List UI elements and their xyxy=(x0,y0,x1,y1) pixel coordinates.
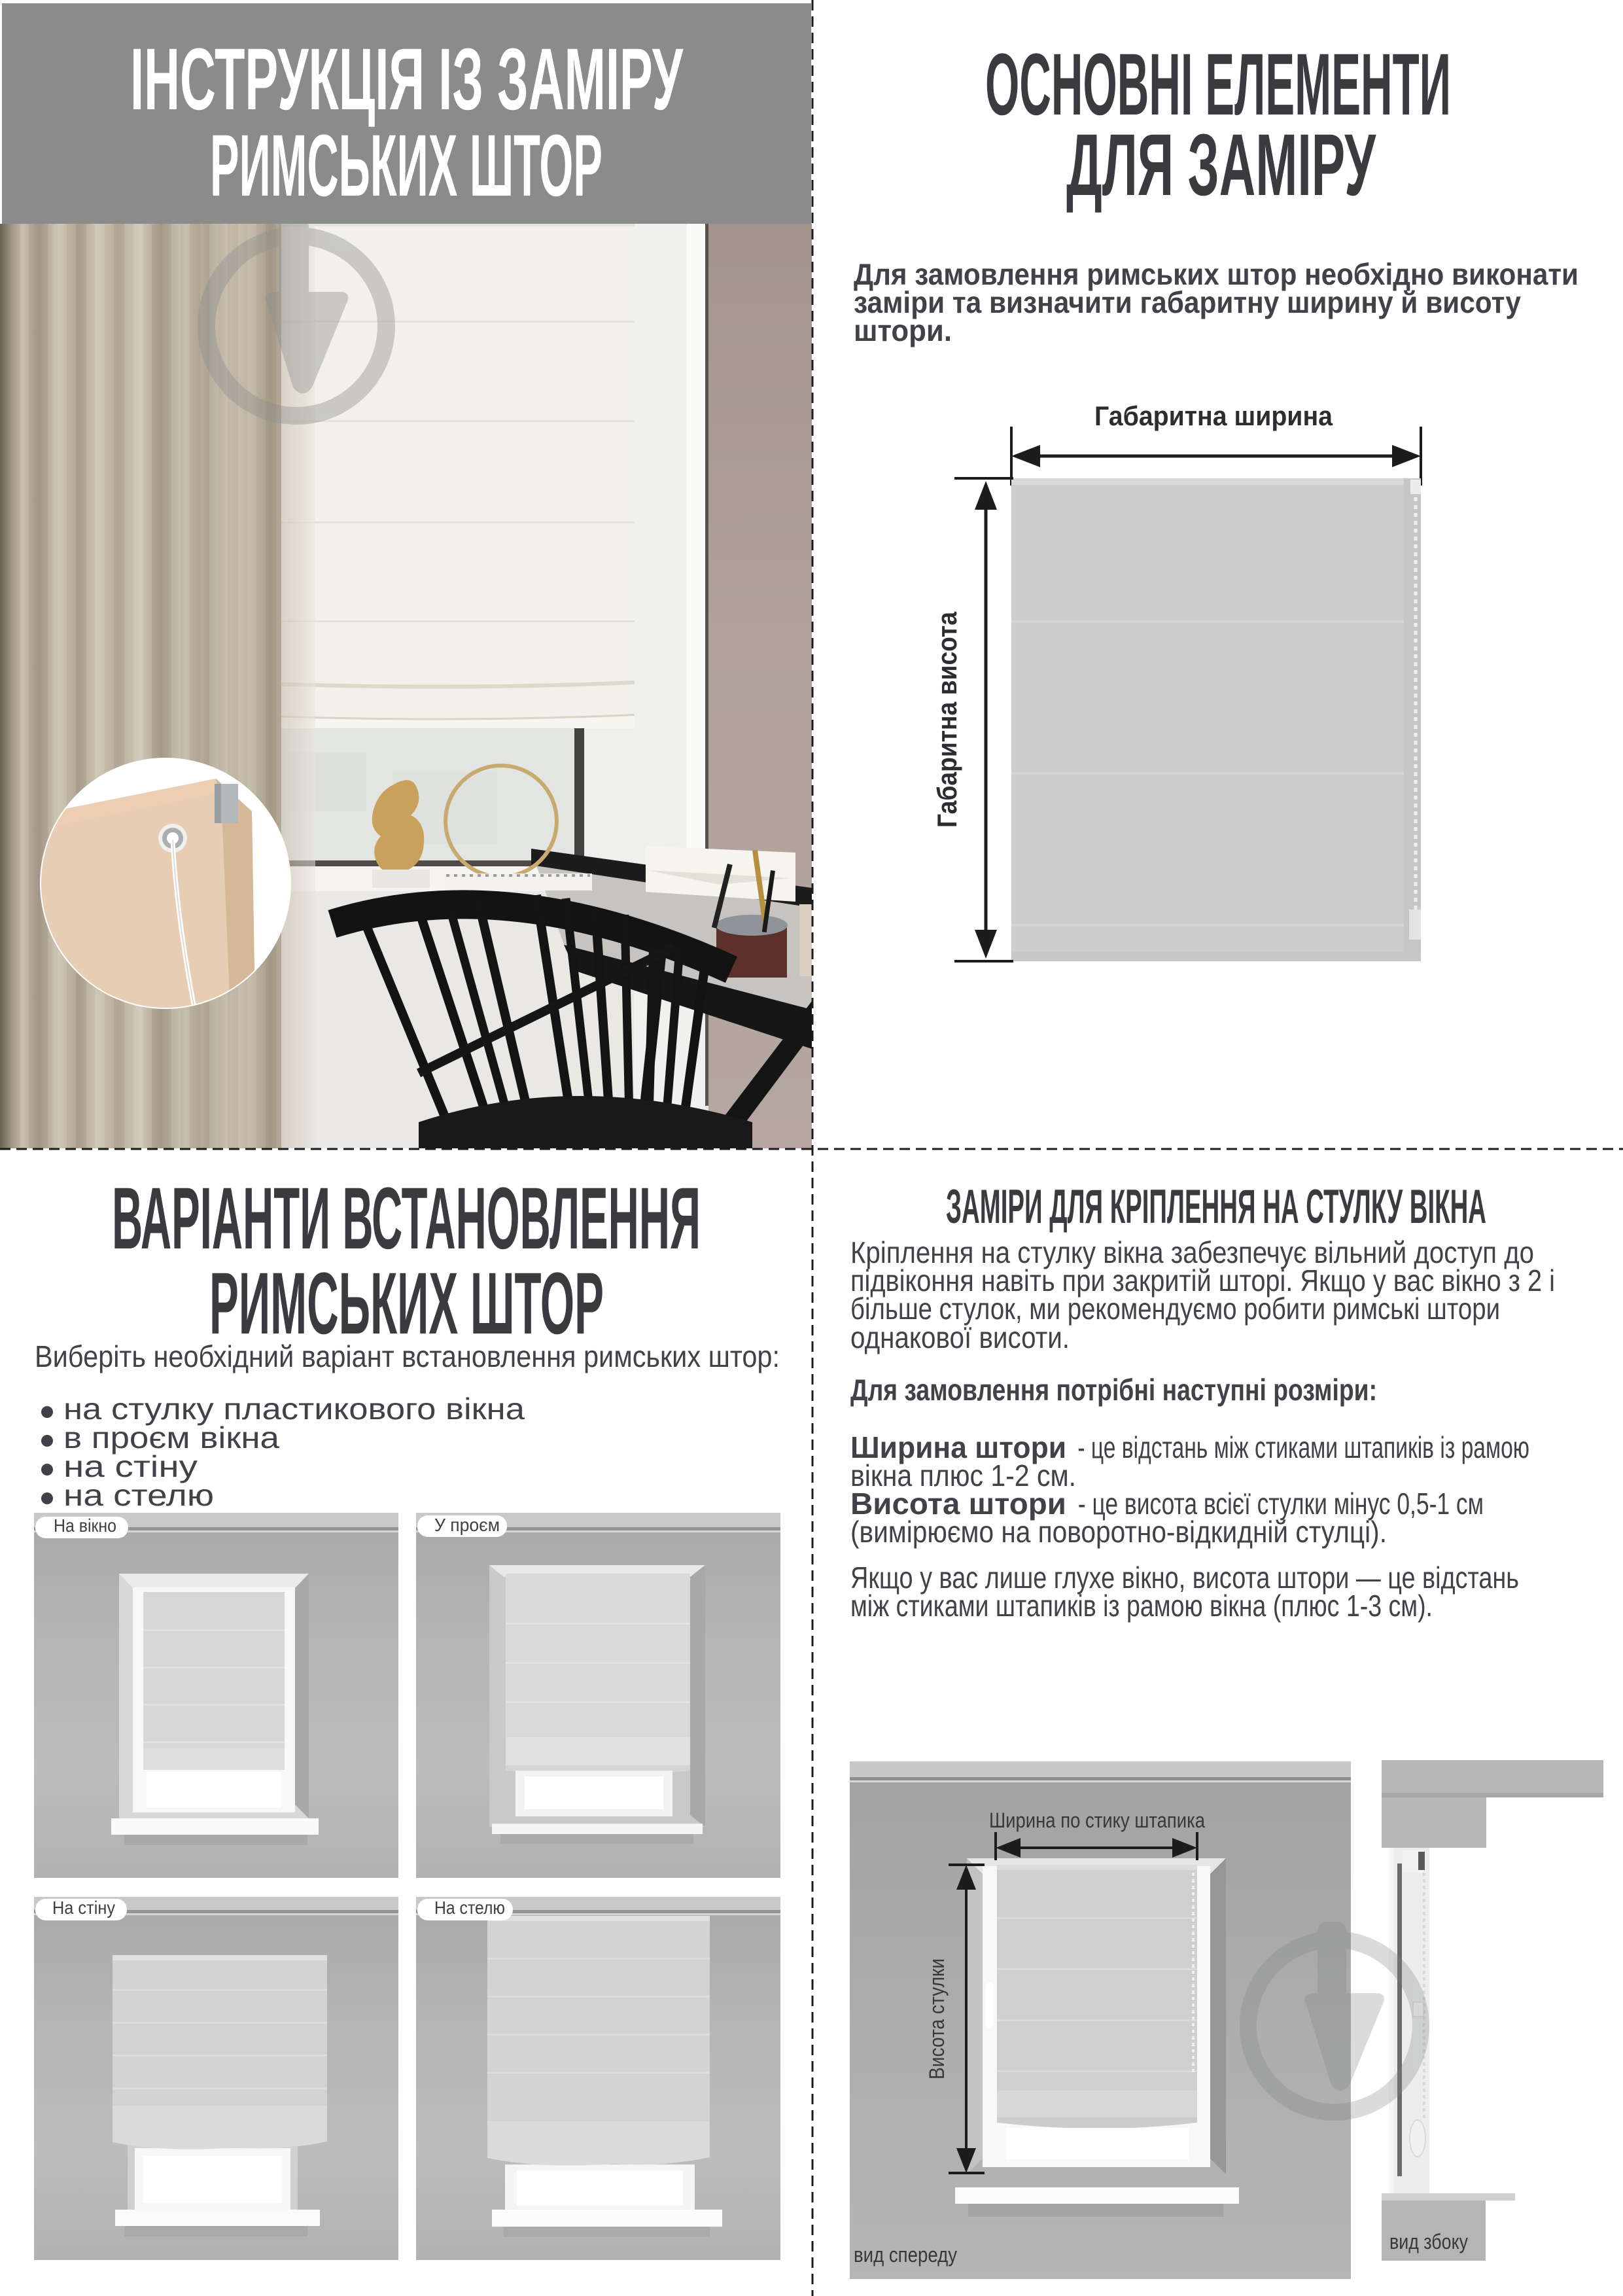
svg-text:ДЛЯ ЗАМІРУ: ДЛЯ ЗАМІРУ xyxy=(1066,116,1376,214)
svg-text:вид спереду: вид спереду xyxy=(854,2243,957,2267)
svg-text:вид збоку: вид збоку xyxy=(1389,2230,1468,2253)
svg-text:Виберіть необхідний варіант вс: Виберіть необхідний варіант встановлення… xyxy=(35,1339,780,1373)
svg-text:заміри та визначити габаритну: заміри та визначити габаритну ширину й в… xyxy=(854,285,1521,319)
svg-text:РИМСЬКИХ ШТОР: РИМСЬКИХ ШТОР xyxy=(210,117,602,215)
svg-text:ІНСТРУКЦІЯ ІЗ ЗАМІРУ: ІНСТРУКЦІЯ ІЗ ЗАМІРУ xyxy=(130,31,684,128)
svg-text:Габаритна висота: Габаритна висота xyxy=(932,611,962,828)
svg-text:У проєм: У проєм xyxy=(434,1515,500,1535)
svg-text:ЗАМІРИ ДЛЯ КРІПЛЕННЯ НА СТУЛКУ: ЗАМІРИ ДЛЯ КРІПЛЕННЯ НА СТУЛКУ ВІКНА xyxy=(946,1180,1486,1233)
svg-text:На стелю: На стелю xyxy=(434,1898,505,1918)
svg-text:Для замовлення потрібні наступ: Для замовлення потрібні наступні розміри… xyxy=(850,1373,1377,1407)
svg-text:штори.: штори. xyxy=(854,313,952,347)
svg-text:(вимірюємо на поворотно-відкид: (вимірюємо на поворотно-відкидній стулці… xyxy=(850,1515,1387,1549)
svg-text:ВАРІАНТИ ВСТАНОВЛЕННЯ: ВАРІАНТИ ВСТАНОВЛЕННЯ xyxy=(112,1170,701,1267)
svg-text:На вікно: На вікно xyxy=(54,1515,116,1536)
svg-text:Висота стулки: Висота стулки xyxy=(925,1958,949,2079)
svg-text:на стелю: на стелю xyxy=(63,1478,214,1512)
svg-text:Ширина по стику штапика: Ширина по стику штапика xyxy=(989,1809,1205,1832)
svg-text:На стіну: На стіну xyxy=(52,1898,115,1918)
svg-text:однакової висоти.: однакової висоти. xyxy=(850,1320,1070,1354)
svg-text:між стиками штапиків із рамою: між стиками штапиків із рамою вікна (плю… xyxy=(850,1589,1433,1623)
svg-text:РИМСЬКИХ ШТОР: РИМСЬКИХ ШТОР xyxy=(209,1255,604,1352)
svg-text:Габаритна ширина: Габаритна ширина xyxy=(1094,400,1333,431)
